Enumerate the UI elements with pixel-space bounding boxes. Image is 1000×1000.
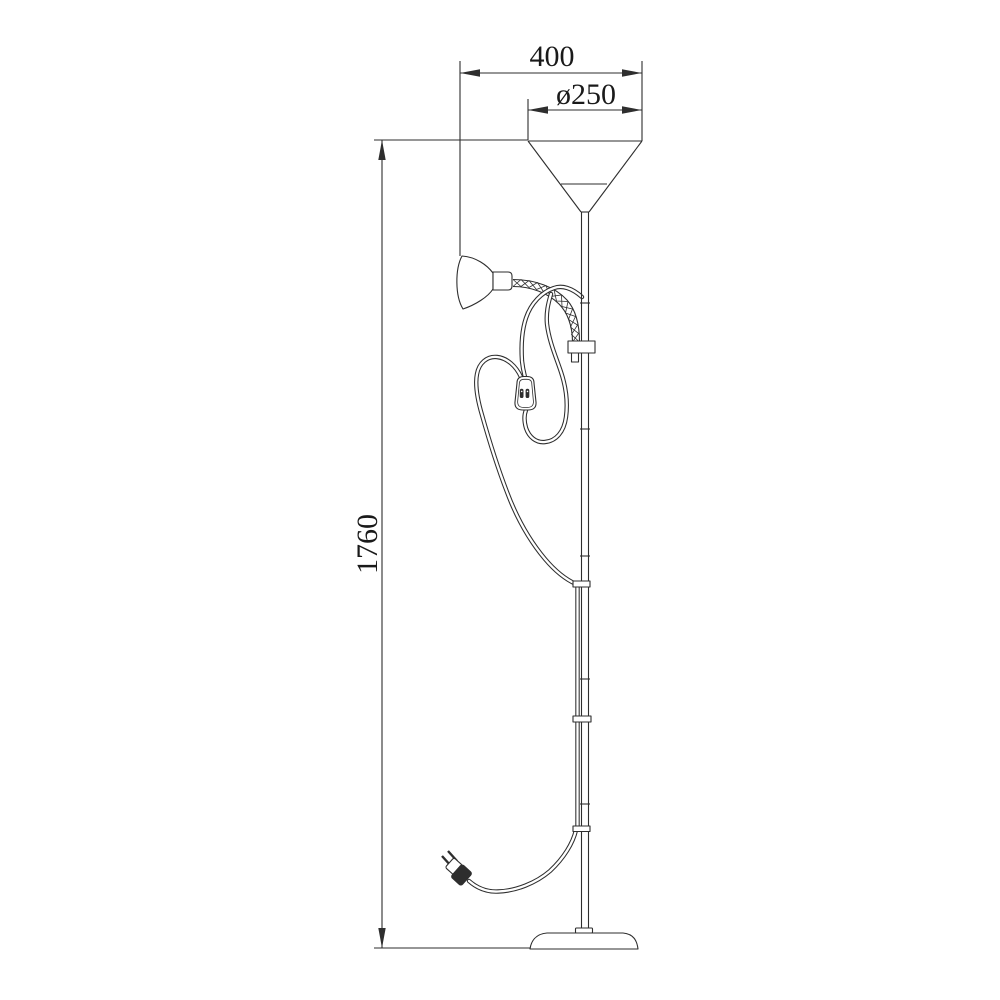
floor-lamp-dimensional-drawing: 1760 400 ø250 — [0, 0, 1000, 1000]
height-dimension: 1760 — [351, 140, 638, 948]
shade-right-side — [589, 141, 642, 212]
switch-button — [520, 389, 524, 398]
switch-button-dot — [521, 391, 523, 393]
cord-exit-collar — [573, 826, 590, 832]
width-dimension-label: 400 — [530, 40, 575, 73]
torchiere-shade — [528, 141, 642, 212]
switch-button-dot — [527, 391, 529, 393]
arrow-right-icon — [622, 106, 642, 113]
pole-base-flange — [576, 928, 593, 933]
gooseneck-clamp — [568, 341, 595, 353]
diameter-dimension-label: ø250 — [556, 78, 616, 111]
diameter-dimension: ø250 — [528, 78, 642, 140]
pole-coupling-band — [573, 716, 591, 722]
technical-drawing-canvas: 1760 400 ø250 — [0, 0, 1000, 1000]
arrow-right-icon — [622, 69, 642, 76]
cord-to-plug — [469, 830, 576, 892]
gooseneck-clamp-stub — [572, 353, 579, 362]
height-dimension-label: 1760 — [351, 514, 384, 574]
arrow-down-icon — [378, 928, 385, 948]
arrow-left-icon — [528, 106, 548, 113]
shade-left-side — [528, 141, 581, 212]
arrow-up-icon — [378, 140, 385, 160]
base-dome — [530, 933, 638, 949]
reading-socket-neck — [493, 272, 512, 290]
inline-switch — [515, 377, 536, 411]
reading-shade — [457, 256, 493, 309]
reading-lamp-head — [457, 256, 512, 309]
arrow-left-icon — [460, 69, 480, 76]
cord-entry-collar — [573, 581, 590, 587]
switch-button — [526, 389, 530, 398]
width-dimension: 400 — [460, 40, 642, 256]
main-pole — [568, 212, 595, 933]
lamp-base — [530, 933, 638, 949]
